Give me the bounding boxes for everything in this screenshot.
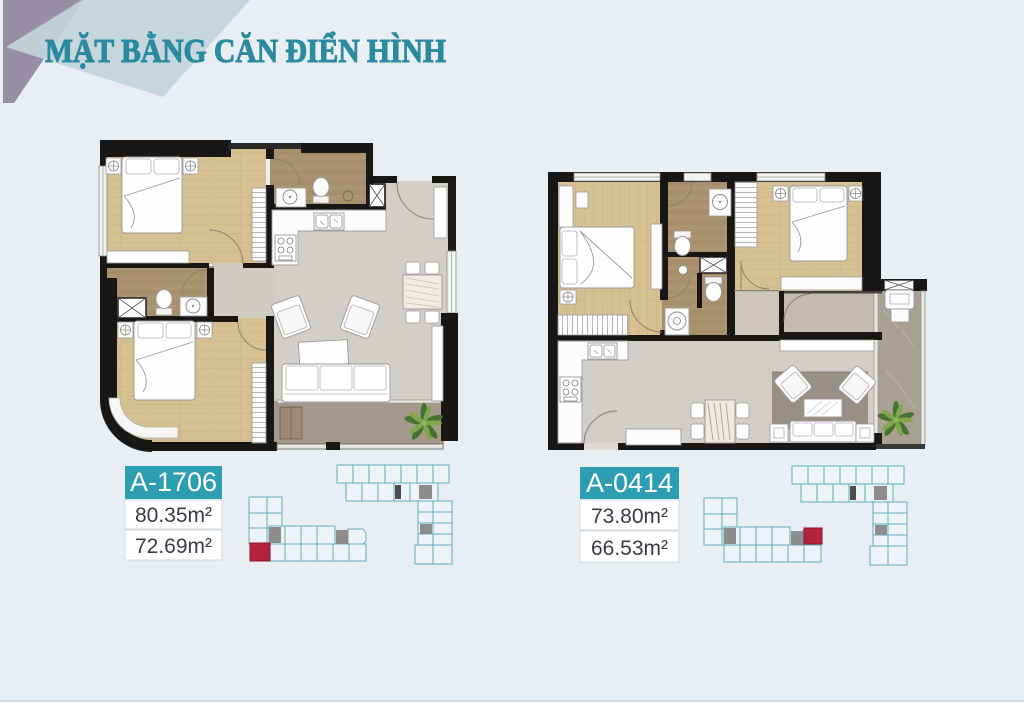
svg-text:MẶT BẰNG CĂN ĐIỂN HÌNH: MẶT BẰNG CĂN ĐIỂN HÌNH bbox=[45, 31, 446, 70]
svg-text:A-0414: A-0414 bbox=[586, 468, 673, 498]
svg-text:72.69m²: 72.69m² bbox=[135, 535, 212, 558]
svg-text:73.80m²: 73.80m² bbox=[591, 505, 668, 528]
svg-text:A-1706: A-1706 bbox=[130, 467, 217, 497]
svg-text:80.35m²: 80.35m² bbox=[135, 504, 212, 527]
svg-text:66.53m²: 66.53m² bbox=[591, 537, 668, 560]
